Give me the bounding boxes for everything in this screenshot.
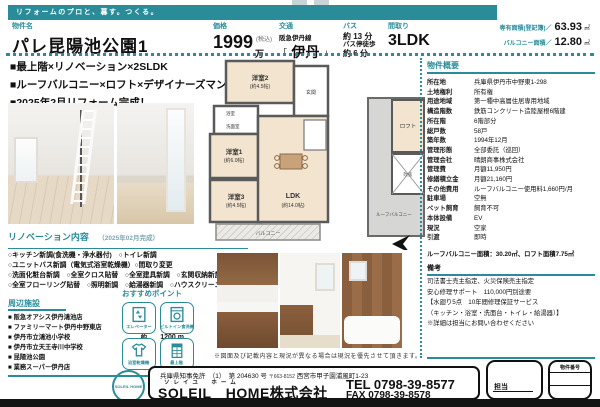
bottom-black-bar — [0, 399, 600, 407]
price-label: 価格 — [213, 21, 272, 31]
roof-balcony-area-note: ルーフバルコニー面積：30.20㎡、ロフト面積7.75㎡ — [427, 249, 595, 258]
exclusive-area-unit: ㎡ — [584, 23, 590, 36]
balcony-area-unit: ㎡ — [584, 38, 590, 51]
photo-washroom — [280, 253, 340, 348]
overview-row: 駐車場空無 — [427, 194, 595, 204]
exclusive-area-label: 専有面積(登記簿)／ — [499, 23, 551, 36]
dishwasher-icon — [168, 306, 186, 323]
svg-text:LDK: LDK — [286, 193, 300, 200]
overview-row: 修繕積立金月額21,160円 — [427, 175, 595, 185]
svg-text:洗面室: 洗面室 — [226, 123, 240, 130]
svg-text:ロフト: ロフト — [400, 123, 417, 130]
svg-text:洋室1: 洋室1 — [226, 147, 243, 156]
price-value: 1999 — [213, 32, 253, 53]
overview-row: 所在階6階部分 — [427, 117, 595, 127]
property-overview-section: 物件概要 所在地兵庫県伊丹市中野東1-298 土地権利所有権 用途地域第一種中高… — [427, 60, 595, 328]
property-name-block: 物件名 パレ昆陽池公園1 — [12, 21, 148, 57]
photo-living-room-loft-ladder — [8, 103, 114, 224]
remark-line: 【水廻り5点 10年間修理保証サービス — [427, 298, 595, 307]
svg-text:(約6.0帖): (約6.0帖) — [224, 157, 245, 164]
overview-row: 構造階数鉄筋コンクリート造陸屋根6階建 — [427, 107, 595, 117]
postal-code: 〒663-8152 — [269, 374, 295, 380]
floor-plan: 洋室2 (約4.5帖) 玄関 浴室 洗面室 洋室1 (約6.0帖) 洋室3 (約… — [196, 58, 426, 250]
balcony-area-value: 12.80 — [554, 36, 582, 49]
remark-line: （キッチン・浴室・洗面台・トイレ・給湯器）】 — [427, 309, 595, 318]
point-badge-bath-dryer: 浴室乾燥機 — [122, 338, 156, 370]
photo-bathroom — [342, 253, 402, 348]
company-info-box: 兵庫県知事免許 （1） 第 204630 号 〒663-8152 西宮市甲子園浦… — [148, 366, 480, 400]
elevator-icon — [130, 306, 148, 323]
renovation-line: ○洗面化粧台新調 ○全室クロス貼替 ○全室建具新調 ○玄関収納新設 — [8, 271, 248, 281]
exclusive-area-value: 63.93 — [554, 21, 582, 34]
svg-text:(約4.5帖): (約4.5帖) — [250, 83, 271, 90]
point-badge-dishwasher: ビルトイン食洗機 — [160, 302, 194, 334]
svg-text:洋室2: 洋室2 — [252, 73, 269, 82]
svg-text:吹抜: 吹抜 — [404, 171, 413, 178]
overview-row: 本体設備EV — [427, 214, 595, 224]
layout-block: 間取り 3LDK — [388, 21, 430, 50]
price-block: 価格 1999 (税込) 万円 — [213, 21, 272, 53]
property-name-label: 物件名 — [12, 21, 148, 31]
overview-row: 築年数1994年12月 — [427, 136, 595, 146]
remark-line: ※詳細は担当にお問い合わせください — [427, 319, 595, 328]
svg-text:(約14.0帖): (約14.0帖) — [281, 202, 304, 209]
layout-value: 3LDK — [388, 32, 430, 49]
svg-text:洋室3: 洋室3 — [228, 192, 245, 201]
tagline-text: リフォームのプロと、暮す。つくる。 — [16, 9, 159, 16]
overview-row: 土地権利所有権 — [427, 88, 595, 98]
overview-row: 管理費月額11,950円 — [427, 165, 595, 175]
bus-time: 約 13 分 — [343, 32, 376, 41]
bus-label: バス — [343, 21, 376, 31]
layout-label: 間取り — [388, 21, 430, 31]
overview-bottom-rule — [427, 357, 595, 359]
property-number-label: 物件番号 — [550, 362, 590, 373]
tagline-banner: リフォームのプロと、暮す。つくる。 — [8, 5, 497, 20]
recommended-points-section: おすすめポイント エレベーター ビルトイン食洗機 — [122, 288, 198, 370]
renovation-line: ○キッチン新調(食洗機・浄水器付) ○トイレ新調 — [8, 251, 248, 261]
svg-text:バルコニー: バルコニー — [256, 231, 281, 237]
point-badge-elevator: エレベーター — [122, 302, 156, 334]
overview-row: 現況空家 — [427, 224, 595, 234]
property-number-field — [550, 373, 590, 386]
points-title: おすすめポイント — [122, 288, 198, 299]
remark-line: 司法書士売主指定、火災保険売主指定 — [427, 277, 595, 286]
property-number-box: 物件番号 — [548, 360, 592, 400]
overview-row: 用途地域第一種中高層住居専用地域 — [427, 97, 595, 107]
renovation-subtitle: （2025年02月完成） — [98, 235, 159, 242]
svg-text:ルーフバルコニー: ルーフバルコニー — [376, 212, 412, 217]
facilities-title: 周辺施設 — [8, 298, 66, 311]
dotted-divider — [6, 53, 594, 56]
remarks-title: 備考 — [427, 263, 595, 276]
overview-row: 所在地兵庫県伊丹市中野東1-298 — [427, 78, 595, 88]
compass-icon — [392, 235, 410, 250]
renovation-title: リノベーション内容 — [8, 232, 89, 242]
svg-text:浴室: 浴室 — [226, 110, 235, 117]
property-flyer: リフォームのプロと、暮す。つくる。 物件名 パレ昆陽池公園1 価格 1999 (… — [0, 0, 600, 407]
rail-line: 阪急伊丹線 — [279, 32, 332, 42]
bathroom-dryer-icon — [130, 342, 148, 359]
staff-box: 担当 — [486, 360, 543, 400]
overview-row: その他費用ルーフバルコニー使用料1,660円/月 — [427, 185, 595, 195]
svg-text:(約4.5帖): (約4.5帖) — [226, 202, 247, 209]
remark-line: 安心修理サポート 110,000円別途要 — [427, 288, 595, 297]
overview-row: 管理会社晴朗商事株式会社 — [427, 156, 595, 166]
transport-label: 交通 — [279, 21, 332, 31]
top-floor-icon — [168, 342, 186, 359]
overview-row: 引渡即時 — [427, 233, 595, 243]
overview-row: ペット飼育飼育不可 — [427, 204, 595, 214]
photos-disclaimer: ※図面及び記載内容と現況が異なる場合は現況を優先させて頂きます。 — [214, 351, 421, 360]
renovation-line: ○ユニットバス新調（電気式浴室乾燥機）○間取り変更 — [8, 261, 248, 271]
photo-kitchen — [217, 253, 278, 348]
overview-row: 管理形態全部委託（巡回） — [427, 146, 595, 156]
mirror-door — [166, 108, 186, 212]
staff-signature-line — [493, 391, 533, 392]
svg-text:玄関: 玄関 — [306, 89, 316, 96]
overview-row: 総戸数58戸 — [427, 127, 595, 137]
bus-walk-label: バス停徒歩 — [343, 41, 376, 49]
area-block: 専有面積(登記簿)／ 63.93 ㎡ バルコニー面積／ 12.80 ㎡ — [438, 21, 590, 51]
price-tax-note: (税込) — [256, 34, 272, 43]
overview-title: 物件概要 — [427, 60, 595, 74]
vertical-dotted-divider — [420, 58, 422, 358]
photo-entrance-hallway — [117, 103, 194, 224]
balcony-area-label: バルコニー面積／ — [504, 38, 552, 51]
